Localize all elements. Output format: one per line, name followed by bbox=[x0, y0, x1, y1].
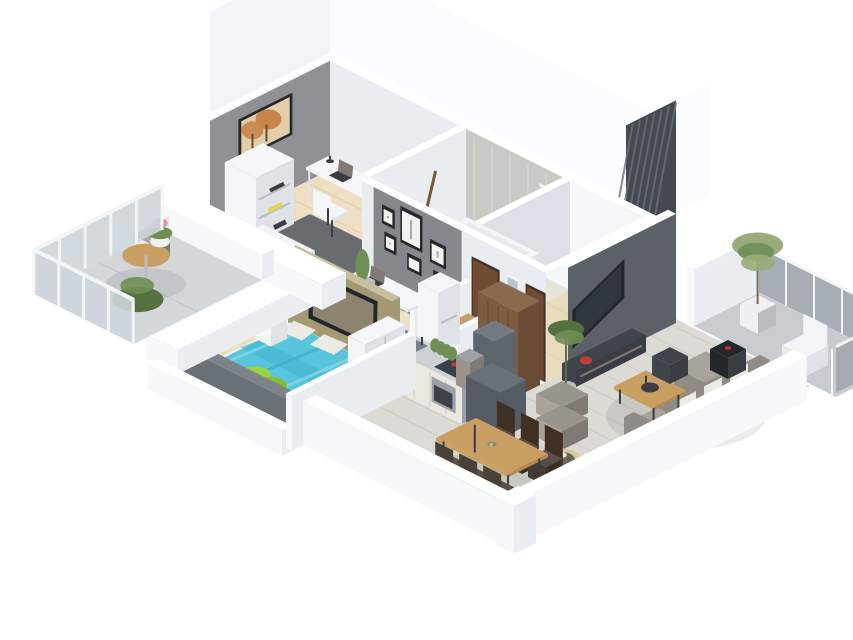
floor-plan-render: 3D isometric apartment floor plan Photor… bbox=[0, 0, 853, 640]
apartment-isometric-render: 3D isometric apartment floor plan Photor… bbox=[0, 0, 853, 640]
tray-flower bbox=[725, 346, 732, 349]
herb-plant bbox=[447, 347, 457, 361]
table-decor bbox=[641, 383, 659, 393]
ne-exterior-slab bbox=[676, 83, 710, 213]
red-book bbox=[580, 356, 592, 364]
